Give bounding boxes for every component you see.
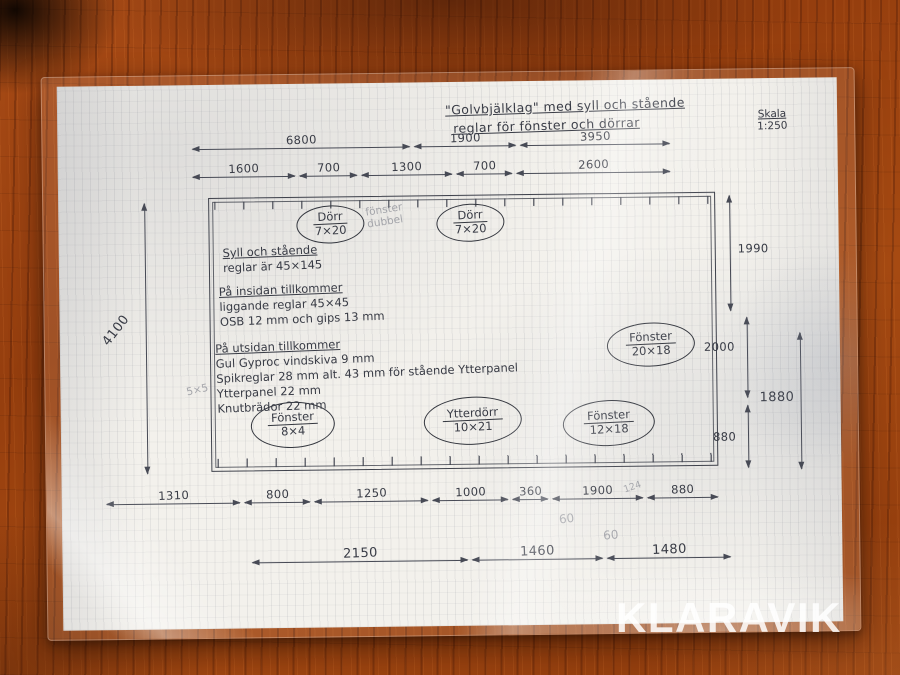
dim-right-1990: 1990	[729, 196, 731, 311]
dim-label: 1900	[582, 483, 613, 498]
dim-label: 1310	[158, 488, 189, 503]
dim-label: 700	[472, 158, 496, 173]
dim-top-1600: 1600	[193, 176, 295, 178]
watermark-logo: KLARAVIK	[616, 594, 842, 642]
dim-label: 2600	[577, 157, 608, 172]
opening-size: 7×20	[315, 224, 347, 239]
dim-bottom-1000: 1000	[433, 499, 508, 501]
photo-scene: "Golvbjälklag" med syll och stående regl…	[0, 0, 900, 675]
scale-value: 1:250	[757, 120, 788, 133]
dim-bottom-1250: 1250	[315, 500, 428, 502]
dim-label: 6800	[285, 132, 316, 147]
dim-label: 3950	[579, 129, 610, 144]
dim-label: 1600	[228, 161, 259, 176]
opening-size: 7×20	[455, 222, 487, 237]
dim-top-700b: 700	[457, 173, 512, 175]
scale-note: Skala 1:250	[743, 107, 802, 133]
opening-size: 10×21	[453, 420, 493, 436]
dim-right-2000: 2000	[747, 317, 749, 397]
dim-bottom-2150: 2150	[253, 560, 468, 564]
dim-label: 880	[671, 482, 695, 497]
note-insida: På insidan tillkommer liggande reglar 45…	[219, 279, 385, 330]
dim-top-700a: 700	[300, 175, 357, 177]
dim-left-4100: 4100	[144, 204, 148, 474]
dim-top-3950: 3950	[520, 143, 669, 146]
dim-label: 360	[518, 484, 542, 499]
dim-label: 800	[265, 487, 289, 502]
dim-label: 1300	[391, 159, 422, 174]
dim-right-880: 880	[748, 405, 750, 467]
dim-label: 1480	[651, 542, 686, 558]
dim-top-1900: 1900	[414, 145, 515, 147]
pencil-note-5x5: 5×5	[185, 383, 209, 399]
dim-top-1300: 1300	[362, 174, 452, 176]
dim-bottom-880: 880	[648, 497, 718, 499]
note-syll: Syll och stående reglar är 45×145	[222, 242, 322, 276]
dim-bottom-1460: 1460	[473, 558, 603, 561]
dim-label: 1880	[759, 390, 794, 405]
dim-right-1880: 1880	[800, 333, 803, 469]
pencil-note-60a: 60	[558, 512, 575, 527]
pencil-note-60b: 60	[603, 528, 619, 542]
dim-label: 2150	[342, 545, 377, 561]
stud-marks-bottom	[217, 453, 712, 468]
dim-label: 880	[713, 429, 736, 443]
dim-label: 4100	[100, 312, 133, 349]
plastic-sleeve: "Golvbjälklag" med syll och stående regl…	[41, 67, 862, 641]
dim-top-2600: 2600	[517, 171, 670, 174]
note-utsida: På utsidan tillkommer Gul Gyproc vindski…	[215, 330, 520, 416]
dim-bottom-1480: 1480	[608, 557, 731, 560]
dim-bottom-1310: 1310	[107, 503, 240, 506]
dim-top-6800: 6800	[192, 146, 409, 150]
dim-label: 1250	[355, 485, 386, 500]
scale-label: Skala	[743, 107, 801, 121]
dim-label: 1460	[520, 543, 555, 559]
opening-size: 12×18	[589, 422, 629, 438]
opening-size: 8×4	[281, 425, 306, 440]
opening-size: 20×18	[631, 344, 671, 360]
dim-bottom-1900: 1900	[553, 498, 643, 500]
dim-label: 1990	[738, 241, 769, 255]
dim-label: 700	[316, 160, 340, 175]
drawing-paper: "Golvbjälklag" med syll och stående regl…	[57, 77, 844, 630]
drawing-title-line2: reglar för fönster och dörrar	[453, 115, 640, 136]
dim-label: 2000	[704, 340, 735, 354]
dim-label: 1000	[454, 484, 485, 499]
dim-bottom-360: 360	[513, 499, 548, 500]
dim-label: 1900	[449, 130, 480, 145]
drawing-title-line1: "Golvbjälklag" med syll och stående	[445, 95, 685, 118]
dim-bottom-800: 800	[245, 502, 310, 504]
